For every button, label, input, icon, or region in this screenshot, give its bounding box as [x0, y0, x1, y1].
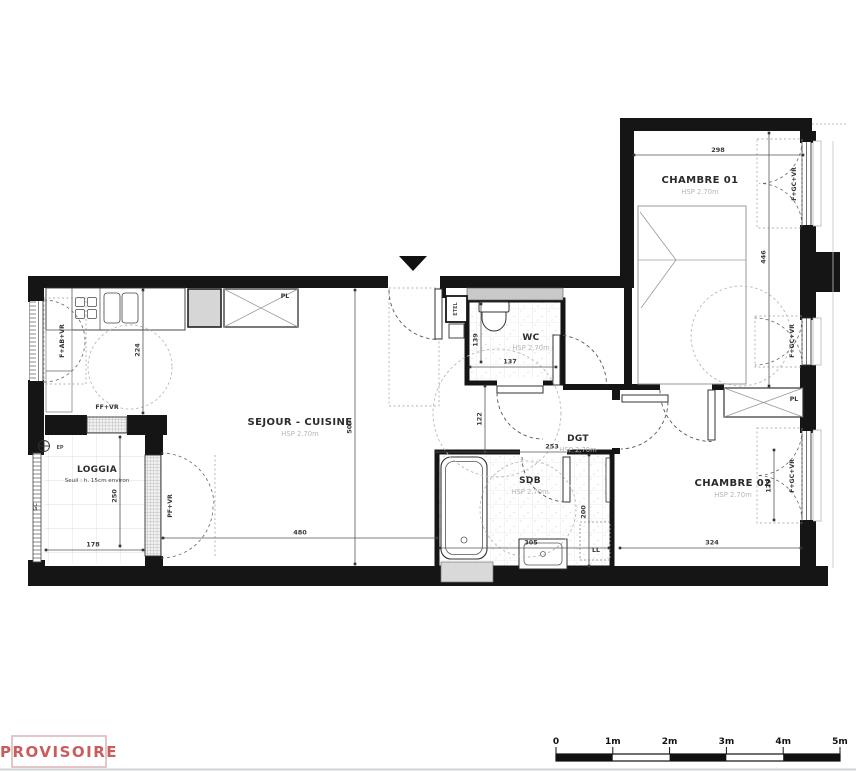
scale-label-4m: 4m [775, 737, 791, 747]
bed-icon [638, 206, 746, 384]
dim-224: 224 [134, 343, 142, 357]
fridge-icon [188, 289, 221, 327]
label-pl-chambre: PL [790, 396, 799, 403]
room-hsp-dgt: HSP 2.70m [559, 446, 597, 454]
entry-arrow-icon [399, 256, 427, 271]
scale-label-1m: 1m [605, 737, 621, 747]
ep-symbol-icon [39, 441, 50, 452]
shower-ledge [441, 562, 493, 582]
floor-plan-svg: 298 446 224 507 480 178 250 137 139 122 … [0, 0, 856, 772]
room-label-loggia: LOGGIA [77, 465, 117, 475]
label-f-ab-vr: F+AB+VR [59, 324, 66, 358]
label-f-gc-vr-1: F+GC+VR [791, 167, 798, 201]
room-label-chambre1: CHAMBRE 01 [662, 175, 739, 186]
chambre1-furniture [638, 206, 746, 384]
label-ff-vr: FF+VR [95, 404, 118, 411]
dim-250: 250 [111, 489, 119, 503]
window-ff-vr [87, 417, 127, 433]
room-label-dgt: DGT [567, 434, 589, 444]
room-note-loggia: Seuil : h. 15cm environ [65, 478, 130, 484]
scale-label-3m: 3m [719, 737, 735, 747]
stamp-text: PROVISOIRE [0, 743, 118, 761]
dim-122: 122 [476, 412, 484, 426]
tall-cabinet [46, 371, 72, 412]
dim-298: 298 [711, 146, 725, 154]
label-f-gc-vr-3: F+GC+VR [789, 459, 796, 493]
room-hsp-sdb: HSP 2.70m [511, 488, 549, 496]
scale-label-0: 0 [553, 737, 559, 747]
room-label-chambre2: CHAMBRE 02 [695, 478, 772, 489]
room-hsp-wc: HSP 2.70m [512, 344, 550, 352]
room-label-wc: WC [522, 333, 539, 343]
room-label-sejour: SEJOUR - CUISINE [248, 417, 353, 428]
room-hsp-chambre1: HSP 2.70m [681, 188, 719, 196]
floor-plan-page: 298 446 224 507 480 178 250 137 139 122 … [0, 0, 856, 772]
label-ep: EP [56, 445, 63, 451]
label-pf-vr: PF+VR [167, 494, 174, 518]
room-hsp-chambre2: HSP 2.70m [714, 491, 752, 499]
label-pl-kitchen: PL [281, 293, 290, 300]
wc-door [497, 386, 543, 439]
dim-200: 200 [580, 505, 588, 519]
towel-rail [606, 458, 610, 502]
label-gc: GC [33, 503, 39, 511]
chambre2-door [621, 395, 668, 449]
dim-178: 178 [86, 541, 100, 549]
dim-480: 480 [293, 529, 307, 537]
wc-soffit [467, 288, 563, 300]
window-f-gc-vr-1 [757, 138, 821, 229]
dim-305: 305 [524, 539, 538, 547]
label-etel: ETEL [453, 301, 459, 315]
room-label-sdb: SDB [519, 476, 541, 486]
room-hsp-sejour: HSP 2.70m [281, 430, 319, 438]
scale-label-5m: 5m [832, 737, 848, 747]
dim-139: 139 [472, 333, 480, 347]
dim-137: 137 [503, 358, 517, 366]
scale-label-2m: 2m [662, 737, 678, 747]
window-f-gc-vr-2 [755, 316, 821, 367]
label-f-gc-vr-2: F+GC+VR [789, 324, 796, 358]
dim-253: 253 [545, 443, 559, 451]
dim-324: 324 [705, 539, 719, 547]
shaft [449, 324, 464, 338]
dim-446: 446 [760, 250, 768, 264]
label-ll: LL [592, 547, 600, 554]
door-pf-vr [145, 453, 215, 558]
entry-door [389, 288, 442, 406]
provisoire-stamp: PROVISOIRE [0, 736, 118, 767]
bottom-divider [0, 769, 856, 771]
scale-bar: 0 1m 2m 3m 4m 5m [553, 737, 848, 761]
